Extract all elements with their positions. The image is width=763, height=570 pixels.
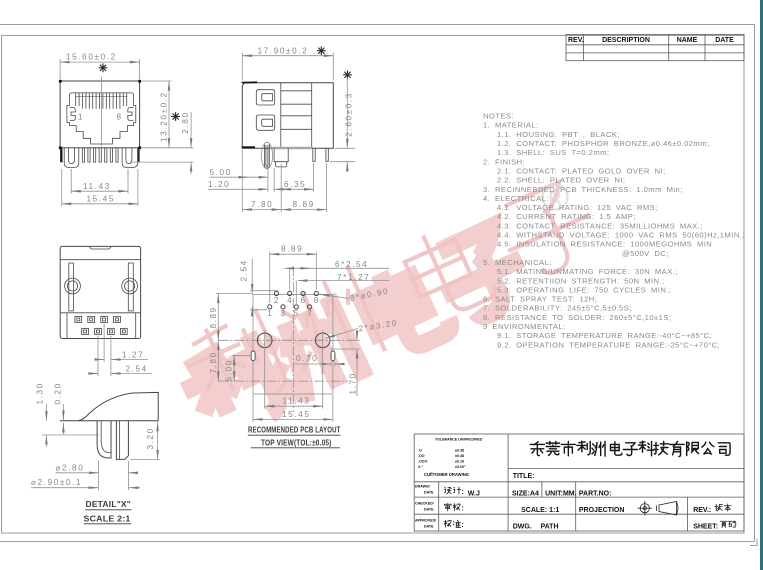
svg-text:1.2. CONTACT: PHOSPHOR BRONZE: 1.2. CONTACT: PHOSPHOR BRONZE,⌀0.46±0.02…	[497, 139, 710, 148]
svg-text:⌀2.90±0.1: ⌀2.90±0.1	[31, 478, 82, 487]
svg-text:X.°: X.°	[418, 465, 423, 469]
svg-text:4.2. CURRENT RATING: 1.5 AMP;: 4.2. CURRENT RATING: 1.5 AMP;	[497, 212, 636, 221]
svg-text:SCALE: 1:1: SCALE: 1:1	[521, 507, 559, 514]
svg-text:8.89: 8.89	[281, 245, 303, 254]
svg-text:1.27: 1.27	[122, 350, 144, 359]
svg-text:2.80: 2.80	[181, 111, 190, 133]
svg-text:DETAIL"X": DETAIL"X"	[86, 499, 132, 509]
svg-text:4.1. VOLTAGE RATING: 125 VAC: 4.1. VOLTAGE RATING: 125 VAC RMS;	[497, 203, 658, 212]
svg-text:REV.: REV.	[568, 37, 584, 44]
svg-text::: :	[462, 489, 464, 496]
svg-text:2.54: 2.54	[126, 364, 148, 373]
svg-text::: :	[462, 522, 464, 529]
svg-text:1: 1	[267, 309, 273, 318]
svg-text:RECOMMENDED PCB LAYOUT: RECOMMENDED PCB LAYOUT	[248, 425, 341, 435]
svg-text:5.2. RETENTIION STRENGTH: 50N: 5.2. RETENTIION STRENGTH: 50N MIN.;	[497, 276, 665, 285]
svg-text:4.4. WITHSTAND VOLTAGE: 1000: 4.4. WITHSTAND VOLTAGE: 1000 VAC RMS 50(…	[497, 231, 745, 240]
svg-text:1.1. HOUSING: PBT , BLACK;: 1.1. HOUSING: PBT , BLACK;	[497, 130, 620, 139]
svg-text:±0.38: ±0.38	[455, 454, 464, 458]
svg-text:±3.00°: ±3.00°	[455, 465, 466, 469]
svg-text:4: 4	[287, 296, 293, 305]
svg-text:8. RESISTANCE TO SOLDER: 260±: 8. RESISTANCE TO SOLDER: 260±5°C,10±1S;	[483, 313, 671, 322]
svg-text:1. MATERIAL:: 1. MATERIAL:	[483, 121, 539, 130]
svg-text:15.45: 15.45	[87, 194, 116, 203]
svg-text:0.70: 0.70	[296, 354, 318, 363]
svg-text:11.43: 11.43	[83, 182, 111, 191]
svg-text:@500V DC;: @500V DC;	[622, 249, 669, 258]
svg-text:1.70: 1.70	[348, 372, 357, 394]
svg-text:5: 5	[294, 309, 300, 318]
svg-text:TOP VIEW(TOL:±0.05): TOP VIEW(TOL:±0.05)	[261, 437, 332, 447]
svg-text:9.1. STORAGE TEMPERATURE RANG: 9.1. STORAGE TEMPERATURE RANGE:-40°C~+85…	[497, 331, 712, 340]
svg-text:DATE: DATE	[424, 508, 434, 512]
svg-text:TOLERANCE UNﬂPECIFIED: TOLERANCE UNﬂPECIFIED	[435, 438, 483, 442]
svg-text:7.80: 7.80	[251, 200, 273, 209]
svg-text::: :	[462, 506, 464, 513]
svg-text:8.89: 8.89	[209, 306, 218, 328]
svg-text:17.90±0.2: 17.90±0.2	[258, 47, 309, 56]
svg-text:1.30: 1.30	[36, 382, 45, 404]
svg-text:8: 8	[117, 113, 123, 122]
svg-text:2.60±0.3: 2.60±0.3	[345, 92, 354, 137]
svg-text:9 ENVIRONMENTAL:: 9 ENVIRONMENTAL:	[483, 322, 566, 331]
svg-text:5. MECHANICAL:: 5. MECHANICAL:	[483, 258, 552, 267]
svg-text:DRAWN/: DRAWN/	[415, 485, 430, 489]
svg-text:6*2.54: 6*2.54	[335, 260, 368, 269]
svg-text:6.35: 6.35	[284, 180, 306, 189]
svg-text:DATE: DATE	[424, 525, 434, 529]
svg-text:1: 1	[78, 113, 84, 122]
svg-text:PART.NO:: PART.NO:	[579, 490, 612, 497]
svg-text:2.2. SHELL: PLATED OVER NI;: 2.2. SHELL: PLATED OVER NI;	[497, 176, 625, 185]
svg-text:CHECKED/: CHECKED/	[415, 502, 434, 506]
svg-text:3. RECINNEBDED PCB THICKNESS:: 3. RECINNEBDED PCB THICKNESS: 1.0mm Min;	[483, 185, 683, 194]
svg-text:PATH: PATH	[541, 524, 559, 531]
svg-text:0.20: 0.20	[54, 382, 63, 404]
svg-text:4. ELECTRICAL:: 4. ELECTRICAL:	[483, 194, 549, 203]
svg-text:4.5. INSULATION RESISTANCE: 1: 4.5. INSULATION RESISTANCE: 1000MEGOHMS …	[497, 240, 712, 249]
svg-text:NOTES:: NOTES:	[483, 112, 514, 121]
svg-text:SIZE:A4: SIZE:A4	[512, 490, 539, 497]
svg-text:13.20±0.2: 13.20±0.2	[160, 91, 169, 142]
svg-text:±0.38: ±0.38	[455, 449, 464, 453]
svg-text:REV.:: REV.:	[693, 507, 711, 514]
svg-text:DESCRIPTION: DESCRIPTION	[602, 37, 650, 44]
svg-text:6. SALT SPRAY TEST: 12H;: 6. SALT SPRAY TEST: 12H;	[483, 295, 597, 304]
svg-text:6: 6	[301, 296, 307, 305]
svg-text:3: 3	[281, 309, 287, 318]
svg-text:8: 8	[314, 296, 320, 305]
svg-text:.OO: .OO	[418, 454, 425, 458]
svg-text:PROJECTION: PROJECTION	[579, 507, 625, 514]
svg-text:2.1. CONTACT: PLATED GOLD OVE: 2.1. CONTACT: PLATED GOLD OVER NI;	[497, 167, 666, 176]
svg-text:UNIT:MM.: UNIT:MM.	[545, 490, 577, 497]
svg-text:⌀2.80: ⌀2.80	[56, 463, 85, 472]
svg-text:SCALE 2:1: SCALE 2:1	[84, 513, 131, 523]
svg-text:.: .	[418, 443, 419, 447]
svg-text:15.45: 15.45	[282, 410, 311, 419]
svg-text:±0.18: ±0.18	[455, 460, 464, 464]
svg-text:1.20: 1.20	[208, 180, 230, 189]
svg-text:APPROVED/: APPROVED/	[415, 519, 436, 523]
svg-text:7: 7	[307, 309, 313, 318]
svg-text:11.43: 11.43	[283, 397, 311, 406]
svg-text:DATE: DATE	[715, 37, 734, 44]
svg-text:5.3. OPERATING LIFE: 750 CYCL: 5.3. OPERATING LIFE: 750 CYCLES MIN.;	[497, 285, 671, 294]
svg-text:SHEET:: SHEET:	[693, 524, 718, 531]
svg-text:5.00: 5.00	[210, 168, 232, 177]
svg-text:7. SOLDERABILITY: 245±5°C,5±0: 7. SOLDERABILITY: 245±5°C,5±0.5S;	[483, 304, 632, 313]
svg-text:7.80: 7.80	[209, 351, 218, 373]
svg-text:.O: .O	[418, 449, 422, 453]
svg-text:2.54: 2.54	[240, 259, 249, 281]
svg-text:W.J: W.J	[468, 490, 480, 497]
svg-text:CUﬂTOMER DRAWING: CUﬂTOMER DRAWING	[424, 472, 469, 477]
svg-text:1.3. SHELL: SUS T=0.2mm;: 1.3. SHELL: SUS T=0.2mm;	[497, 148, 609, 157]
svg-text:2: 2	[274, 296, 280, 305]
svg-text:DATE: DATE	[424, 491, 434, 495]
svg-text:4.3. CONTACT RESISTANCE: 35MI: 4.3. CONTACT RESISTANCE: 35MILLIOHMS MAX…	[497, 221, 703, 230]
svg-text:8.89: 8.89	[293, 200, 315, 209]
svg-text:DWG.: DWG.	[513, 524, 532, 531]
svg-text:9.2. OPERATION TEMPERATURE RA: 9.2. OPERATION TEMPERATURE RANGE:-25°C~+…	[497, 340, 720, 349]
svg-text:5.1. MATING/UNMATING FORCE: 3: 5.1. MATING/UNMATING FORCE: 30N MAX.;	[497, 267, 678, 276]
svg-text:15.60±0.2: 15.60±0.2	[66, 53, 117, 62]
svg-text:2. FINISH:: 2. FINISH:	[483, 157, 525, 166]
svg-text:3.20: 3.20	[146, 427, 155, 449]
svg-text:TITLE:: TITLE:	[513, 473, 535, 480]
svg-text:.OOO: .OOO	[418, 460, 428, 464]
svg-text:NAME: NAME	[677, 37, 698, 44]
svg-text:5.00: 5.00	[225, 359, 234, 381]
